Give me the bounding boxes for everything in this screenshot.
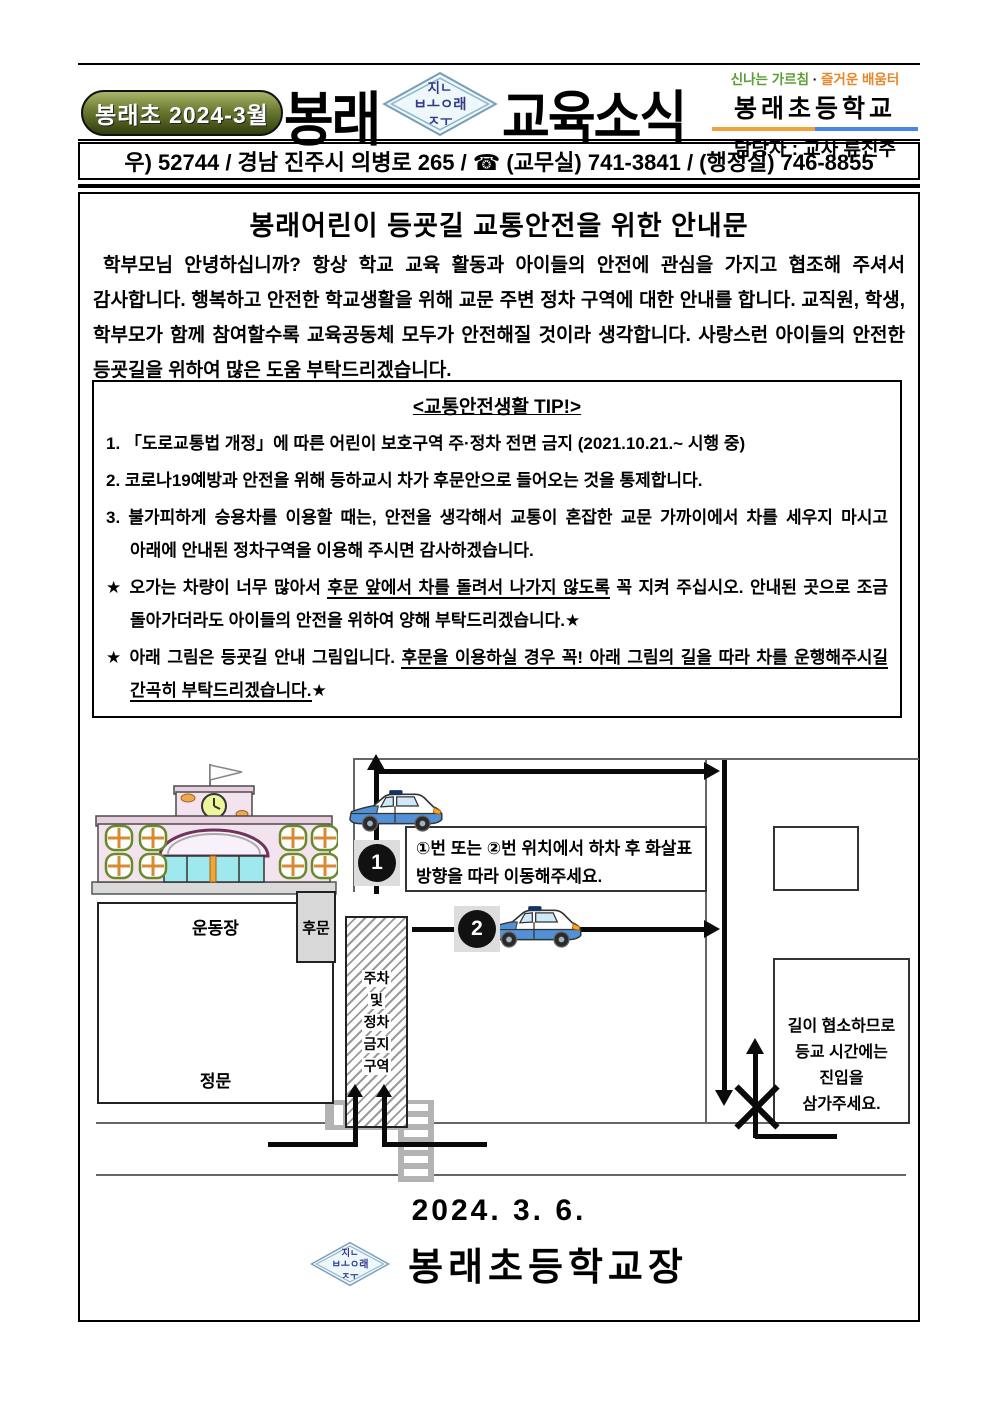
no-zone-line: 및 <box>368 992 385 1009</box>
slogan-dot: · <box>809 72 821 87</box>
no-entry-base-line <box>755 1134 837 1139</box>
stop-point-1-badge: 1 <box>354 840 400 886</box>
traffic-tip-box: <교통안전생활 TIP!> 1. 「도로교통법 개정」에 따른 어린이 보호구역… <box>92 380 902 718</box>
road-edge-bottom-lower <box>96 1174 906 1176</box>
walk-left-line <box>268 1142 356 1147</box>
walk-right-line <box>387 1142 487 1147</box>
signature-block: 봉래초등학교장 <box>80 1236 918 1291</box>
building-block-1 <box>773 826 859 891</box>
stop-point-2-badge: 2 <box>454 906 500 952</box>
tip-star-1-emphasis: 후문 앞에서 차를 돌려서 나가지 않도록 <box>327 578 610 599</box>
main-gate-label: 정문 <box>200 1067 231 1092</box>
no-zone-line: 구역 <box>362 1058 392 1075</box>
masthead: 봉래초 2024-3월 봉래 교육소식 신나는 가르침 · 즐거운 배움터 봉래… <box>78 63 920 141</box>
no-entry-arrow-line <box>753 1052 758 1138</box>
school-name: 봉래초등학교 <box>712 89 918 125</box>
header-divider <box>78 184 920 188</box>
walk-right-head-icon <box>376 1084 392 1097</box>
route-down-line <box>722 760 727 1090</box>
dropoff-instruction-box: ①번 또는 ②번 위치에서 하차 후 화살표 방향을 따라 이동해주세요. <box>405 826 707 892</box>
no-zone-line: 주차 <box>362 970 392 987</box>
tip-item-1: 1. 「도로교통법 개정」에 따른 어린이 보호구역 주·정차 전면 금지 (2… <box>106 427 888 460</box>
playground-label: 운동장 <box>192 914 239 939</box>
notice-title: 봉래어린이 등굣길 교통안전을 위한 안내문 <box>80 204 918 243</box>
slogan-part-orange: 즐거운 배움터 <box>821 72 899 87</box>
route-map: 운동장 정문 후문 주차 및 정차 금지 구역 길이 협소하므로 등교 시간에는… <box>82 744 918 1192</box>
principal-signature: 봉래초등학교장 <box>408 1236 688 1291</box>
school-building-illustration <box>90 762 338 896</box>
tip-star-2: ★ 아래 그림은 등굣길 안내 그림입니다. 후문을 이용하실 경우 꼭! 아래… <box>106 641 888 707</box>
school-slogan: 신나는 가르침 · 즐거운 배움터 <box>712 68 918 88</box>
principal-stamp-icon <box>310 1238 390 1290</box>
tip-item-2: 2. 코로나19예방과 안전을 위해 등하교시 차가 후문안으로 들어오는 것을… <box>106 464 888 497</box>
car-1-icon <box>345 787 445 835</box>
tip-title: <교통안전생활 TIP!> <box>106 392 888 419</box>
road-edge-right-vertical <box>705 758 707 1122</box>
masthead-title-right: 교육소식 <box>502 72 685 153</box>
address-bar: 우) 52744 / 경남 진주시 의병로 265 / ☎ (교무실) 741-… <box>78 142 920 180</box>
tip-item-3: 3. 불가피하게 승용차를 이용할 때는, 안전을 생각해서 교통이 혼잡한 교… <box>106 501 888 567</box>
notice-body: 봉래어린이 등굣길 교통안전을 위한 안내문 학부모님 안녕하십니까? 항상 학… <box>78 192 920 1322</box>
route-top-head-icon <box>704 762 720 780</box>
walk-left-vertical <box>353 1096 358 1147</box>
back-gate-box: 후문 <box>296 891 336 963</box>
route-down-head-icon <box>715 1090 733 1106</box>
road-edge-top <box>353 758 919 760</box>
issue-badge: 봉래초 2024-3월 <box>81 90 283 136</box>
no-zone-line: 금지 <box>362 1036 392 1053</box>
no-zone-line: 정차 <box>362 1014 392 1031</box>
route-arrow-2-head-icon <box>704 920 720 938</box>
notice-date: 2024. 3. 6. <box>80 1194 918 1228</box>
tip-star-1: ★ 오가는 차량이 너무 많아서 후문 앞에서 차를 돌려서 나가지 않도록 꼭… <box>106 571 888 637</box>
no-entry-arrow-head-icon <box>746 1038 764 1054</box>
narrow-road-warning: 길이 협소하므로 등교 시간에는 진입을 삼가주세요. <box>773 1014 910 1118</box>
walk-left-head-icon <box>347 1084 363 1097</box>
notice-intro: 학부모님 안녕하십니까? 항상 학교 교육 활동과 아이들의 안전에 관심을 가… <box>93 248 905 388</box>
school-stamp-icon <box>382 71 498 137</box>
route-arrow-1-head-icon <box>367 754 385 770</box>
newsletter-page: 봉래초 2024-3월 봉래 교육소식 신나는 가르침 · 즐거운 배움터 봉래… <box>0 0 992 1403</box>
school-name-underline <box>712 127 918 131</box>
route-top-line <box>376 769 706 774</box>
slogan-part-green: 신나는 가르침 <box>731 72 809 87</box>
walk-right-vertical <box>382 1096 387 1147</box>
